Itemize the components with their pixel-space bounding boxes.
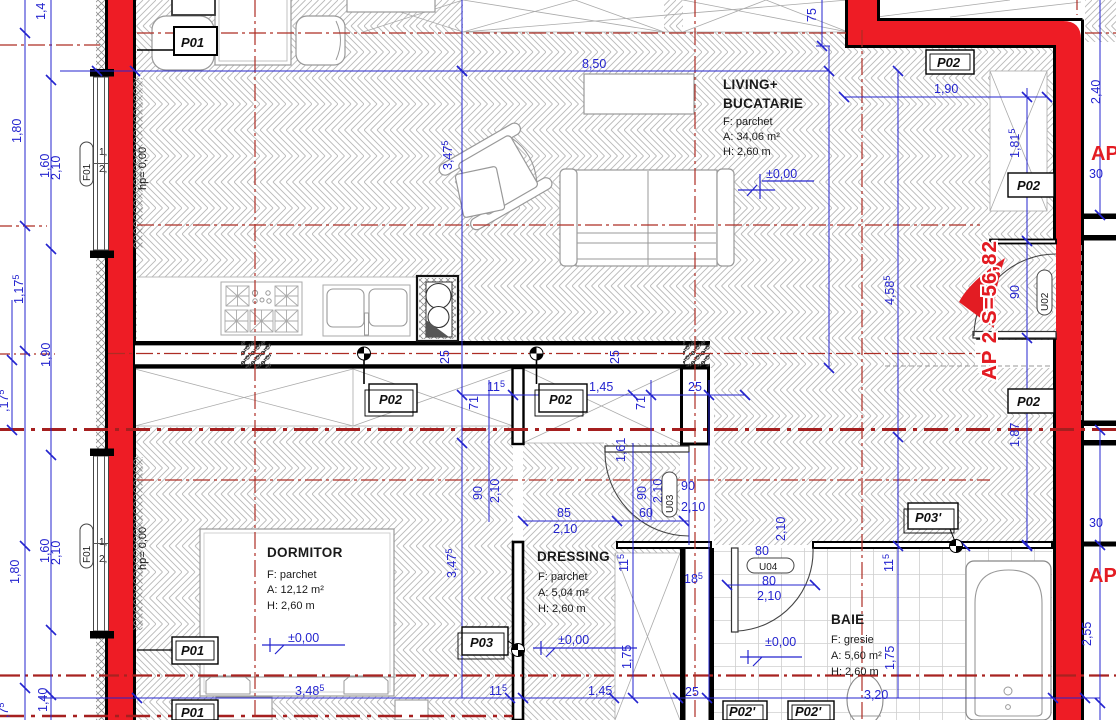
- svg-text:1,80: 1,80: [10, 119, 24, 143]
- svg-text:75: 75: [805, 8, 819, 22]
- svg-text:F: gresie: F: gresie: [831, 634, 874, 646]
- svg-text:60: 60: [639, 506, 653, 520]
- svg-text:±0,00: ±0,00: [765, 635, 796, 649]
- svg-text:90: 90: [681, 479, 695, 493]
- svg-text:U03: U03: [665, 494, 676, 513]
- svg-text:3,20: 3,20: [864, 688, 888, 702]
- svg-text:hp= 0,00: hp= 0,00: [137, 147, 149, 190]
- svg-text:1,87: 1,87: [1008, 423, 1022, 447]
- svg-text:1,75: 1,75: [620, 645, 634, 669]
- svg-text:AP: AP: [1091, 143, 1116, 165]
- svg-text:U02: U02: [1040, 292, 1051, 311]
- svg-text:F01: F01: [82, 545, 93, 563]
- svg-text:90: 90: [1008, 285, 1022, 299]
- svg-text:1,: 1,: [99, 537, 107, 548]
- svg-text:±0,00: ±0,00: [766, 167, 797, 181]
- svg-text:BUCATARIE: BUCATARIE: [723, 96, 803, 111]
- svg-text:1,80: 1,80: [8, 560, 22, 584]
- svg-text:±0,00: ±0,00: [558, 633, 589, 647]
- svg-text:AP: AP: [1089, 565, 1116, 587]
- svg-text:2,10: 2,10: [49, 156, 63, 180]
- svg-text:2,10: 2,10: [757, 589, 781, 603]
- svg-text:90: 90: [635, 486, 649, 500]
- svg-text:P02: P02: [937, 55, 961, 70]
- svg-text:DRESSING: DRESSING: [537, 549, 610, 564]
- svg-text:P03: P03: [470, 635, 494, 650]
- svg-text:F: parchet: F: parchet: [538, 571, 588, 583]
- svg-text:hp= 0,00: hp= 0,00: [137, 527, 149, 570]
- svg-text:25: 25: [685, 685, 699, 699]
- svg-text:A: 34,06 m²: A: 34,06 m²: [723, 131, 780, 143]
- svg-text:P02: P02: [1017, 178, 1041, 193]
- svg-text:2,40: 2,40: [1089, 80, 1103, 104]
- svg-text:BAIE: BAIE: [831, 612, 864, 627]
- svg-text:P01: P01: [181, 35, 204, 50]
- svg-text:F: parchet: F: parchet: [723, 116, 773, 128]
- svg-text:25: 25: [608, 350, 622, 364]
- svg-text:P03': P03': [915, 510, 942, 525]
- svg-text:1,40: 1,40: [36, 688, 50, 712]
- svg-text:1,90: 1,90: [39, 343, 53, 367]
- svg-text:80: 80: [762, 574, 776, 588]
- svg-text:1,75: 1,75: [883, 646, 897, 670]
- svg-text:1,61: 1,61: [614, 438, 628, 462]
- svg-text:P01: P01: [181, 705, 204, 720]
- svg-text:2,10: 2,10: [488, 479, 502, 503]
- svg-text:P01: P01: [181, 643, 204, 658]
- svg-text:80: 80: [755, 544, 769, 558]
- svg-text:P02: P02: [379, 392, 403, 407]
- svg-text:U04: U04: [759, 562, 778, 573]
- svg-text:30: 30: [1089, 516, 1103, 530]
- svg-text:1,45: 1,45: [588, 684, 612, 698]
- svg-text:25: 25: [438, 350, 452, 364]
- svg-text:1,90: 1,90: [934, 82, 958, 96]
- svg-text:H: 2,60 m: H: 2,60 m: [723, 146, 771, 158]
- svg-text:F01: F01: [82, 163, 93, 181]
- svg-text:1,45: 1,45: [589, 380, 613, 394]
- svg-text:LIVING+: LIVING+: [723, 77, 778, 92]
- svg-text:P02: P02: [549, 392, 573, 407]
- svg-text:2,10: 2,10: [553, 522, 577, 536]
- svg-text:85: 85: [557, 506, 571, 520]
- svg-text:2,10: 2,10: [681, 500, 705, 514]
- svg-text:2,: 2,: [99, 164, 107, 175]
- svg-text:±0,00: ±0,00: [288, 631, 319, 645]
- svg-text:P02': P02': [795, 704, 822, 719]
- svg-text:P02': P02': [729, 704, 756, 719]
- svg-text:A: 5,60 m²: A: 5,60 m²: [831, 650, 882, 662]
- svg-text:2,: 2,: [99, 554, 107, 565]
- svg-text:AP 2 S=56,82: AP 2 S=56,82: [978, 240, 1001, 380]
- svg-text:F: parchet: F: parchet: [267, 569, 317, 581]
- svg-text:8,50: 8,50: [582, 57, 606, 71]
- svg-text:90: 90: [471, 486, 485, 500]
- svg-text:A: 12,12 m²: A: 12,12 m²: [267, 584, 324, 596]
- svg-text:H: 2,60 m: H: 2,60 m: [267, 600, 315, 612]
- svg-text:2,55: 2,55: [1080, 622, 1094, 646]
- svg-text:25: 25: [688, 380, 702, 394]
- svg-text:71: 71: [634, 396, 648, 410]
- svg-text:30: 30: [1089, 167, 1103, 181]
- svg-text:DORMITOR: DORMITOR: [267, 545, 343, 560]
- svg-text:2,10: 2,10: [774, 517, 788, 541]
- svg-text:H: 2,60 m: H: 2,60 m: [831, 666, 879, 678]
- svg-text:H: 2,60 m: H: 2,60 m: [538, 603, 586, 615]
- svg-text:P02: P02: [1017, 394, 1041, 409]
- svg-text:A: 5,04 m²: A: 5,04 m²: [538, 587, 589, 599]
- svg-text:1,4: 1,4: [34, 3, 48, 20]
- svg-text:2,10: 2,10: [49, 541, 63, 565]
- svg-text:71: 71: [467, 396, 481, 410]
- svg-text:1,: 1,: [99, 147, 107, 158]
